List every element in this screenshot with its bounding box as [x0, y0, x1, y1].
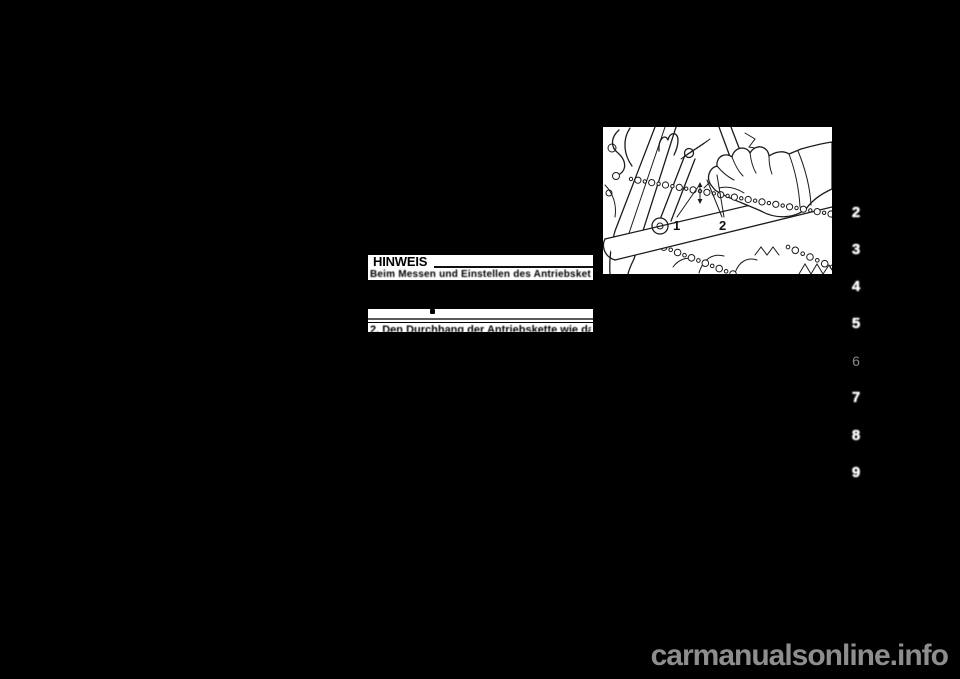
note-title-rule: [434, 266, 593, 268]
chapter-tab-5: 5: [848, 316, 864, 332]
chapter-tab-3: 3: [848, 242, 864, 258]
figure-chain-slack-illustration: 1 2: [603, 127, 832, 274]
chain-slack-drawing: 1 2: [603, 127, 832, 274]
text-artifact: [430, 309, 435, 314]
note-box-lower-strip: 2. Den Durchhang der Antriebskette wie d…: [368, 309, 593, 332]
note-body-degraded-text: Beim Messen und Einstellen des Antriebsk…: [370, 269, 591, 280]
watermark-text: carmanualsonline.info: [651, 639, 948, 673]
chapter-tab-8: 8: [848, 428, 864, 444]
callout-1-label: 1: [673, 218, 680, 233]
chapter-tab-2: 2: [848, 205, 864, 221]
step-text-clipped: 2. Den Durchhang der Antriebskette wie d…: [370, 324, 591, 332]
section-divider-upper-rule: [368, 318, 593, 320]
chapter-tab-7: 7: [848, 390, 864, 406]
chapter-tab-6-current: 6: [848, 353, 864, 369]
callout-2-label: 2: [719, 218, 726, 233]
chapter-tab-9: 9: [848, 465, 864, 481]
note-box: HINWEIS Beim Messen und Einstellen des A…: [368, 255, 593, 280]
manual-page-scan: 1 2 HINWEIS Beim Messen und Einstellen d…: [0, 0, 960, 679]
chapter-tab-4: 4: [848, 279, 864, 295]
note-title: HINWEIS: [373, 255, 427, 269]
section-divider-lower-rule: [368, 322, 593, 324]
slack-arrow: [698, 182, 703, 204]
